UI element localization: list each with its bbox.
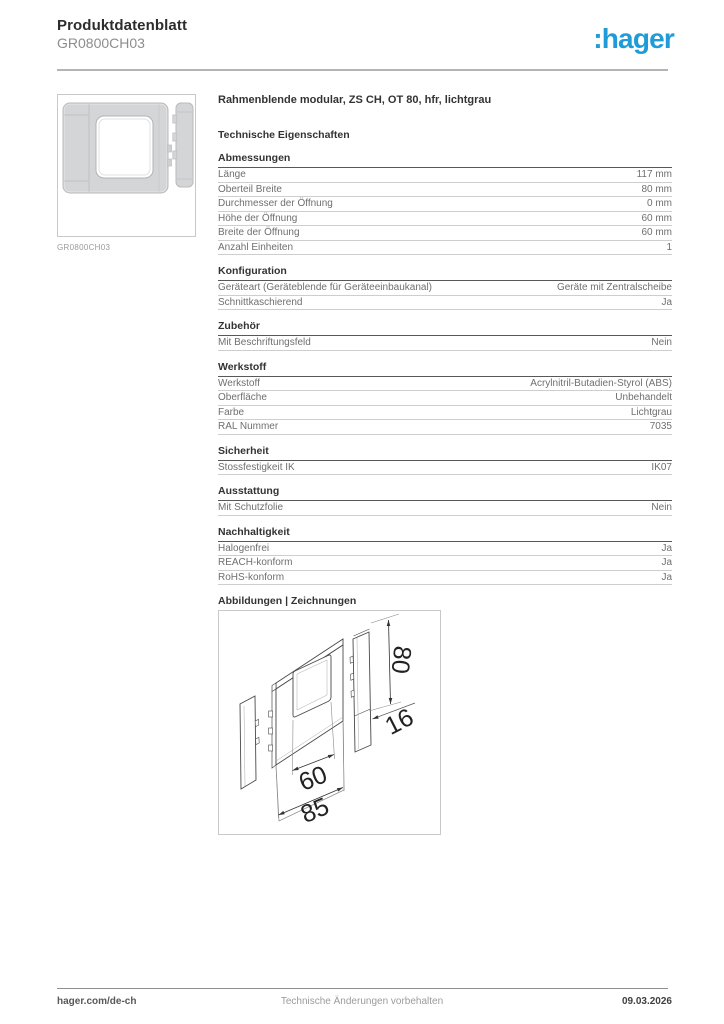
spec-value: 7035	[650, 421, 672, 432]
footer-divider	[57, 988, 668, 989]
spec-label: Mit Schutzfolie	[218, 502, 283, 513]
spec-value: Ja	[661, 572, 672, 583]
spec-row: Oberfläche Unbehandelt	[218, 391, 672, 406]
section-rows: Geräteart (Geräteblende für Geräteeinbau…	[218, 281, 672, 310]
spec-label: Oberfläche	[218, 392, 267, 403]
spec-section: Ausstattung Mit Schutzfolie Nein	[218, 485, 672, 516]
product-photo-frame	[63, 103, 172, 193]
technical-drawing-svg: 80 16 60	[219, 611, 440, 834]
spec-row: Länge 117 mm	[218, 168, 672, 183]
spec-value: Acrylnitril-Butadien-Styrol (ABS)	[530, 378, 672, 389]
spec-label: RoHS-konform	[218, 572, 284, 583]
datasheet-page: Produktdatenblatt GR0800CH03 :hager	[0, 0, 724, 1024]
product-title: Rahmenblende modular, ZS CH, OT 80, hfr,…	[218, 94, 672, 106]
spec-section: Nachhaltigkeit Halogenfrei Ja REACH-konf…	[218, 526, 672, 586]
footer-notice: Technische Änderungen vorbehalten	[0, 996, 724, 1007]
spec-value: 80 mm	[641, 184, 672, 195]
section-rows: Länge 117 mm Oberteil Breite 80 mm Durch…	[218, 168, 672, 255]
product-photo	[57, 94, 196, 237]
section-title: Werkstoff	[218, 361, 672, 377]
spec-value: IK07	[651, 462, 672, 473]
spec-section: Sicherheit Stossfestigkeit IK IK07	[218, 445, 672, 476]
spec-row: Durchmesser der Öffnung 0 mm	[218, 197, 672, 212]
spec-row: Stossfestigkeit IK IK07	[218, 461, 672, 476]
document-reference: GR0800CH03	[57, 35, 187, 52]
hager-logo: :hager	[593, 25, 674, 53]
dim-height-label: 80	[386, 645, 417, 676]
spec-label: Farbe	[218, 407, 244, 418]
spec-section: Abmessungen Länge 117 mm Oberteil Breite…	[218, 152, 672, 255]
spec-label: Stossfestigkeit IK	[218, 462, 295, 473]
section-title: Nachhaltigkeit	[218, 526, 672, 542]
section-rows: Mit Beschriftungsfeld Nein	[218, 336, 672, 351]
drawing-right-piece	[350, 629, 371, 752]
spec-sections: Abmessungen Länge 117 mm Oberteil Breite…	[218, 152, 672, 585]
product-photo-render	[58, 95, 195, 236]
document-title: Produktdatenblatt	[57, 16, 187, 35]
technical-drawing: 80 16 60	[218, 610, 441, 835]
section-rows: Stossfestigkeit IK IK07	[218, 461, 672, 476]
drawing-left-piece	[240, 696, 259, 789]
spec-label: Halogenfrei	[218, 543, 269, 554]
header-divider	[57, 69, 668, 71]
spec-value: 117 mm	[637, 169, 672, 180]
section-title: Abmessungen	[218, 152, 672, 168]
product-photo-insert	[173, 103, 193, 187]
spec-label: REACH-konform	[218, 557, 292, 568]
spec-label: Anzahl Einheiten	[218, 242, 293, 253]
section-rows: Werkstoff Acrylnitril-Butadien-Styrol (A…	[218, 377, 672, 435]
spec-row: RAL Nummer 7035	[218, 420, 672, 435]
spec-value: 60 mm	[641, 227, 672, 238]
spec-value: Nein	[651, 337, 672, 348]
footer-date: 09.03.2026	[622, 996, 672, 1007]
tech-properties-heading: Technische Eigenschaften	[218, 129, 672, 141]
spec-label: Mit Beschriftungsfeld	[218, 337, 311, 348]
spec-value: Ja	[661, 543, 672, 554]
spec-section: Zubehör Mit Beschriftungsfeld Nein	[218, 320, 672, 351]
spec-value: Lichtgrau	[631, 407, 672, 418]
spec-label: Durchmesser der Öffnung	[218, 198, 333, 209]
drawings-heading: Abbildungen | Zeichnungen	[218, 595, 672, 607]
spec-value: Ja	[661, 297, 672, 308]
spec-label: Höhe der Öffnung	[218, 213, 297, 224]
product-photo-caption: GR0800CH03	[57, 243, 110, 252]
section-title: Ausstattung	[218, 485, 672, 501]
dimension-height: 80	[369, 614, 416, 711]
spec-label: Werkstoff	[218, 378, 260, 389]
spec-value: 0 mm	[647, 198, 672, 209]
spec-label: Breite der Öffnung	[218, 227, 300, 238]
spec-row: Breite der Öffnung 60 mm	[218, 226, 672, 241]
spec-row: REACH-konform Ja	[218, 556, 672, 571]
spec-row: Geräteart (Geräteblende für Geräteeinbau…	[218, 281, 672, 296]
spec-value: Ja	[661, 557, 672, 568]
spec-row: Mit Schutzfolie Nein	[218, 501, 672, 516]
spec-value: Unbehandelt	[615, 392, 672, 403]
spec-value: Geräte mit Zentralscheibe	[557, 282, 672, 293]
spec-row: Halogenfrei Ja	[218, 542, 672, 557]
spec-row: Mit Beschriftungsfeld Nein	[218, 336, 672, 351]
spec-row: Werkstoff Acrylnitril-Butadien-Styrol (A…	[218, 377, 672, 392]
section-title: Sicherheit	[218, 445, 672, 461]
spec-value: Nein	[651, 502, 672, 513]
section-rows: Halogenfrei Ja REACH-konform Ja RoHS-kon…	[218, 542, 672, 586]
spec-section: Werkstoff Werkstoff Acrylnitril-Butadien…	[218, 361, 672, 435]
dim-depth-label: 16	[381, 703, 418, 741]
spec-row: RoHS-konform Ja	[218, 571, 672, 586]
page-header: Produktdatenblatt GR0800CH03	[57, 16, 187, 52]
spec-label: Länge	[218, 169, 246, 180]
section-rows: Mit Schutzfolie Nein	[218, 501, 672, 516]
dimension-depth: 16	[373, 703, 419, 741]
section-title: Konfiguration	[218, 265, 672, 281]
spec-value: 60 mm	[641, 213, 672, 224]
content-column: Rahmenblende modular, ZS CH, OT 80, hfr,…	[218, 94, 672, 835]
section-title: Zubehör	[218, 320, 672, 336]
spec-row: Oberteil Breite 80 mm	[218, 183, 672, 198]
spec-label: Oberteil Breite	[218, 184, 282, 195]
spec-label: RAL Nummer	[218, 421, 278, 432]
spec-section: Konfiguration Geräteart (Geräteblende fü…	[218, 265, 672, 310]
spec-row: Farbe Lichtgrau	[218, 406, 672, 421]
spec-row: Schnittkaschierend Ja	[218, 296, 672, 311]
spec-value: 1	[666, 242, 672, 253]
spec-row: Höhe der Öffnung 60 mm	[218, 212, 672, 227]
spec-label: Geräteart (Geräteblende für Geräteeinbau…	[218, 282, 432, 293]
spec-row: Anzahl Einheiten 1	[218, 241, 672, 256]
spec-label: Schnittkaschierend	[218, 297, 303, 308]
